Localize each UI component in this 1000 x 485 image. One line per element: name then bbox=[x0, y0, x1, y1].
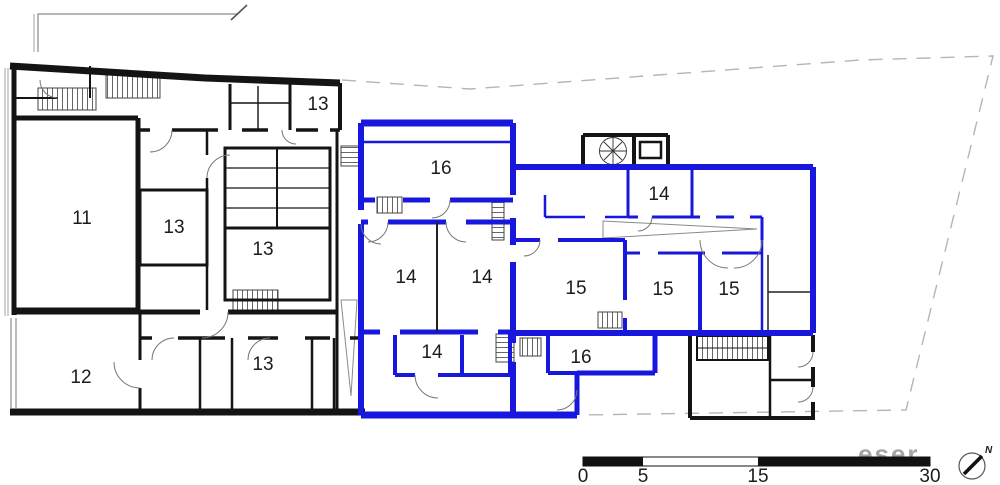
scale-tick-label: 0 bbox=[578, 466, 589, 485]
room-label: 14 bbox=[648, 184, 670, 205]
room-label: 11 bbox=[72, 208, 92, 229]
room-label: 15 bbox=[565, 278, 586, 299]
existing-building-walls bbox=[10, 64, 365, 412]
room-label: 13 bbox=[307, 94, 328, 115]
room-label: 14 bbox=[421, 342, 443, 363]
scale-tick-label: 30 bbox=[919, 466, 940, 485]
scale-tick-label: 5 bbox=[638, 466, 649, 485]
highlighted-wing-walls bbox=[361, 123, 813, 415]
room-label: 16 bbox=[570, 347, 591, 368]
north-label: N bbox=[985, 445, 993, 456]
room-label: 15 bbox=[652, 279, 673, 300]
room-label: 14 bbox=[395, 267, 417, 288]
north-compass-icon: N bbox=[959, 445, 993, 479]
spiral-staircase bbox=[600, 138, 627, 165]
room-label: 13 bbox=[163, 217, 184, 238]
room-label: 12 bbox=[70, 367, 91, 388]
room-label: 13 bbox=[252, 354, 273, 375]
floor-plan-page: 111313131312161414141515151416 eser 0515… bbox=[0, 0, 1000, 485]
scale-bar: 051530 bbox=[578, 457, 941, 485]
scale-tick-label: 15 bbox=[747, 466, 768, 485]
floor-plan-drawing: 111313131312161414141515151416 eser 0515… bbox=[0, 0, 1000, 485]
room-label: 14 bbox=[471, 267, 493, 288]
room-label: 16 bbox=[430, 158, 451, 179]
entry-railing bbox=[5, 5, 247, 316]
room-label: 13 bbox=[252, 239, 273, 260]
room-label: 15 bbox=[718, 279, 739, 300]
